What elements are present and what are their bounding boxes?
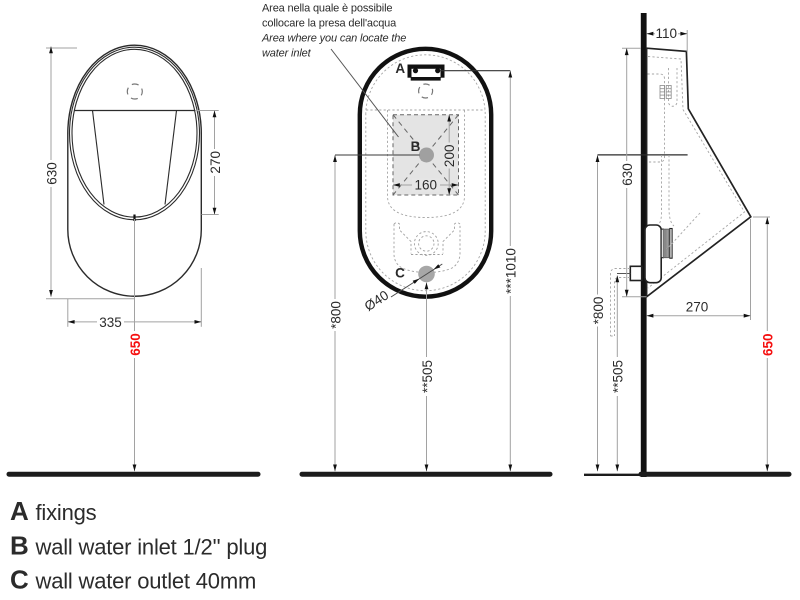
svg-text:wall water inlet 1/2'' plug: wall water inlet 1/2'' plug <box>35 535 268 560</box>
svg-text:collocare la presa dell'acqua: collocare la presa dell'acqua <box>262 18 397 30</box>
svg-text:200: 200 <box>442 145 457 168</box>
svg-text:650: 650 <box>128 333 143 356</box>
svg-text:270: 270 <box>686 300 709 315</box>
svg-text:650: 650 <box>761 333 776 356</box>
svg-text:**505: **505 <box>420 360 435 393</box>
svg-text:630: 630 <box>44 162 59 185</box>
svg-text:C: C <box>10 565 29 595</box>
svg-text:C: C <box>395 266 405 281</box>
svg-text:B: B <box>411 139 421 154</box>
svg-text:335: 335 <box>99 315 122 330</box>
svg-text:A: A <box>10 496 29 526</box>
svg-text:Area nella quale è possibile: Area nella quale è possibile <box>262 3 392 15</box>
svg-text:270: 270 <box>208 151 223 174</box>
svg-text:water inlet: water inlet <box>262 48 312 60</box>
svg-text:B: B <box>10 531 29 561</box>
svg-text:Ø40: Ø40 <box>362 287 392 313</box>
svg-text:630: 630 <box>620 163 635 186</box>
svg-text:*800: *800 <box>591 297 606 325</box>
svg-text:A: A <box>395 61 405 76</box>
svg-text:160: 160 <box>415 178 438 193</box>
svg-text:Area where you can locate the: Area where you can locate the <box>261 33 406 45</box>
svg-text:110: 110 <box>656 26 678 41</box>
svg-text:*800: *800 <box>328 301 343 329</box>
svg-text:**505: **505 <box>611 360 626 393</box>
svg-text:wall water outlet 40mm: wall water outlet 40mm <box>35 569 257 594</box>
svg-text:***1010: ***1010 <box>504 248 519 294</box>
svg-text:fixings: fixings <box>36 500 97 525</box>
